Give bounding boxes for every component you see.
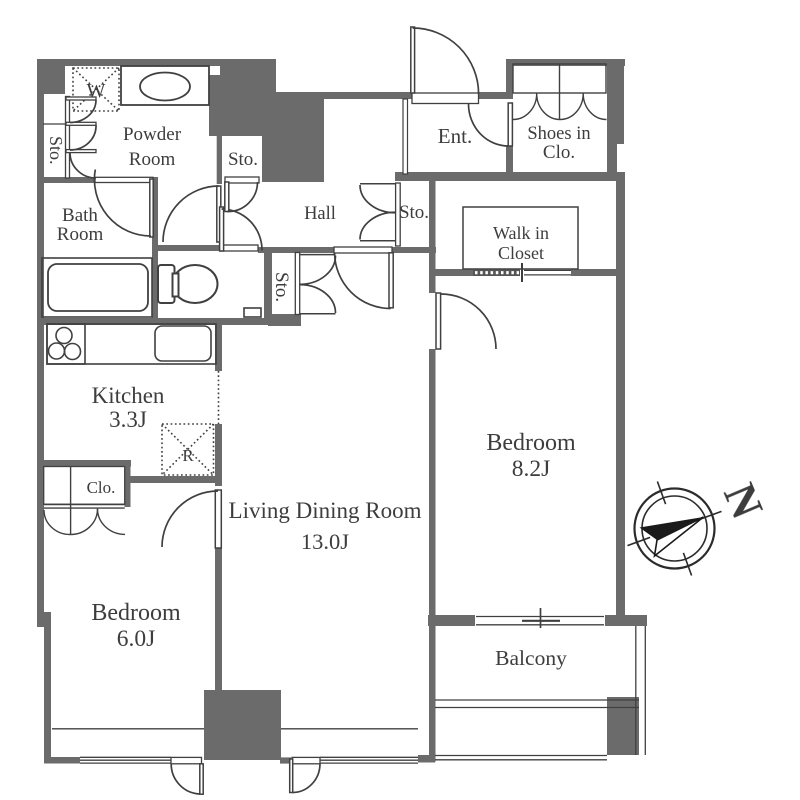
svg-text:Room: Room bbox=[129, 149, 176, 170]
svg-text:Sto.: Sto. bbox=[399, 202, 429, 223]
svg-text:Clo.: Clo. bbox=[543, 142, 575, 163]
svg-text:R: R bbox=[182, 446, 194, 465]
svg-text:8.2J: 8.2J bbox=[512, 456, 551, 482]
svg-text:Living Dining Room: Living Dining Room bbox=[229, 498, 422, 523]
svg-text:Closet: Closet bbox=[498, 243, 544, 263]
svg-text:Walk in: Walk in bbox=[493, 223, 549, 243]
svg-text:Bath: Bath bbox=[62, 205, 98, 226]
svg-text:Sto.: Sto. bbox=[46, 136, 66, 165]
svg-text:3.3J: 3.3J bbox=[109, 407, 147, 432]
svg-text:Sto.: Sto. bbox=[271, 272, 292, 302]
svg-text:Balcony: Balcony bbox=[495, 646, 567, 670]
svg-text:13.0J: 13.0J bbox=[301, 529, 349, 554]
svg-text:Kitchen: Kitchen bbox=[92, 383, 165, 408]
svg-text:Bedroom: Bedroom bbox=[486, 430, 576, 456]
svg-text:Ent.: Ent. bbox=[438, 124, 472, 148]
svg-text:Bedroom: Bedroom bbox=[91, 600, 181, 626]
svg-text:Powder: Powder bbox=[123, 124, 182, 145]
svg-text:Shoes in: Shoes in bbox=[527, 124, 590, 144]
svg-text:Room: Room bbox=[57, 224, 104, 245]
svg-text:Clo.: Clo. bbox=[87, 478, 116, 497]
svg-text:6.0J: 6.0J bbox=[117, 626, 156, 652]
svg-text:Sto.: Sto. bbox=[228, 149, 258, 170]
svg-text:Hall: Hall bbox=[304, 204, 336, 224]
svg-text:W: W bbox=[87, 80, 106, 102]
